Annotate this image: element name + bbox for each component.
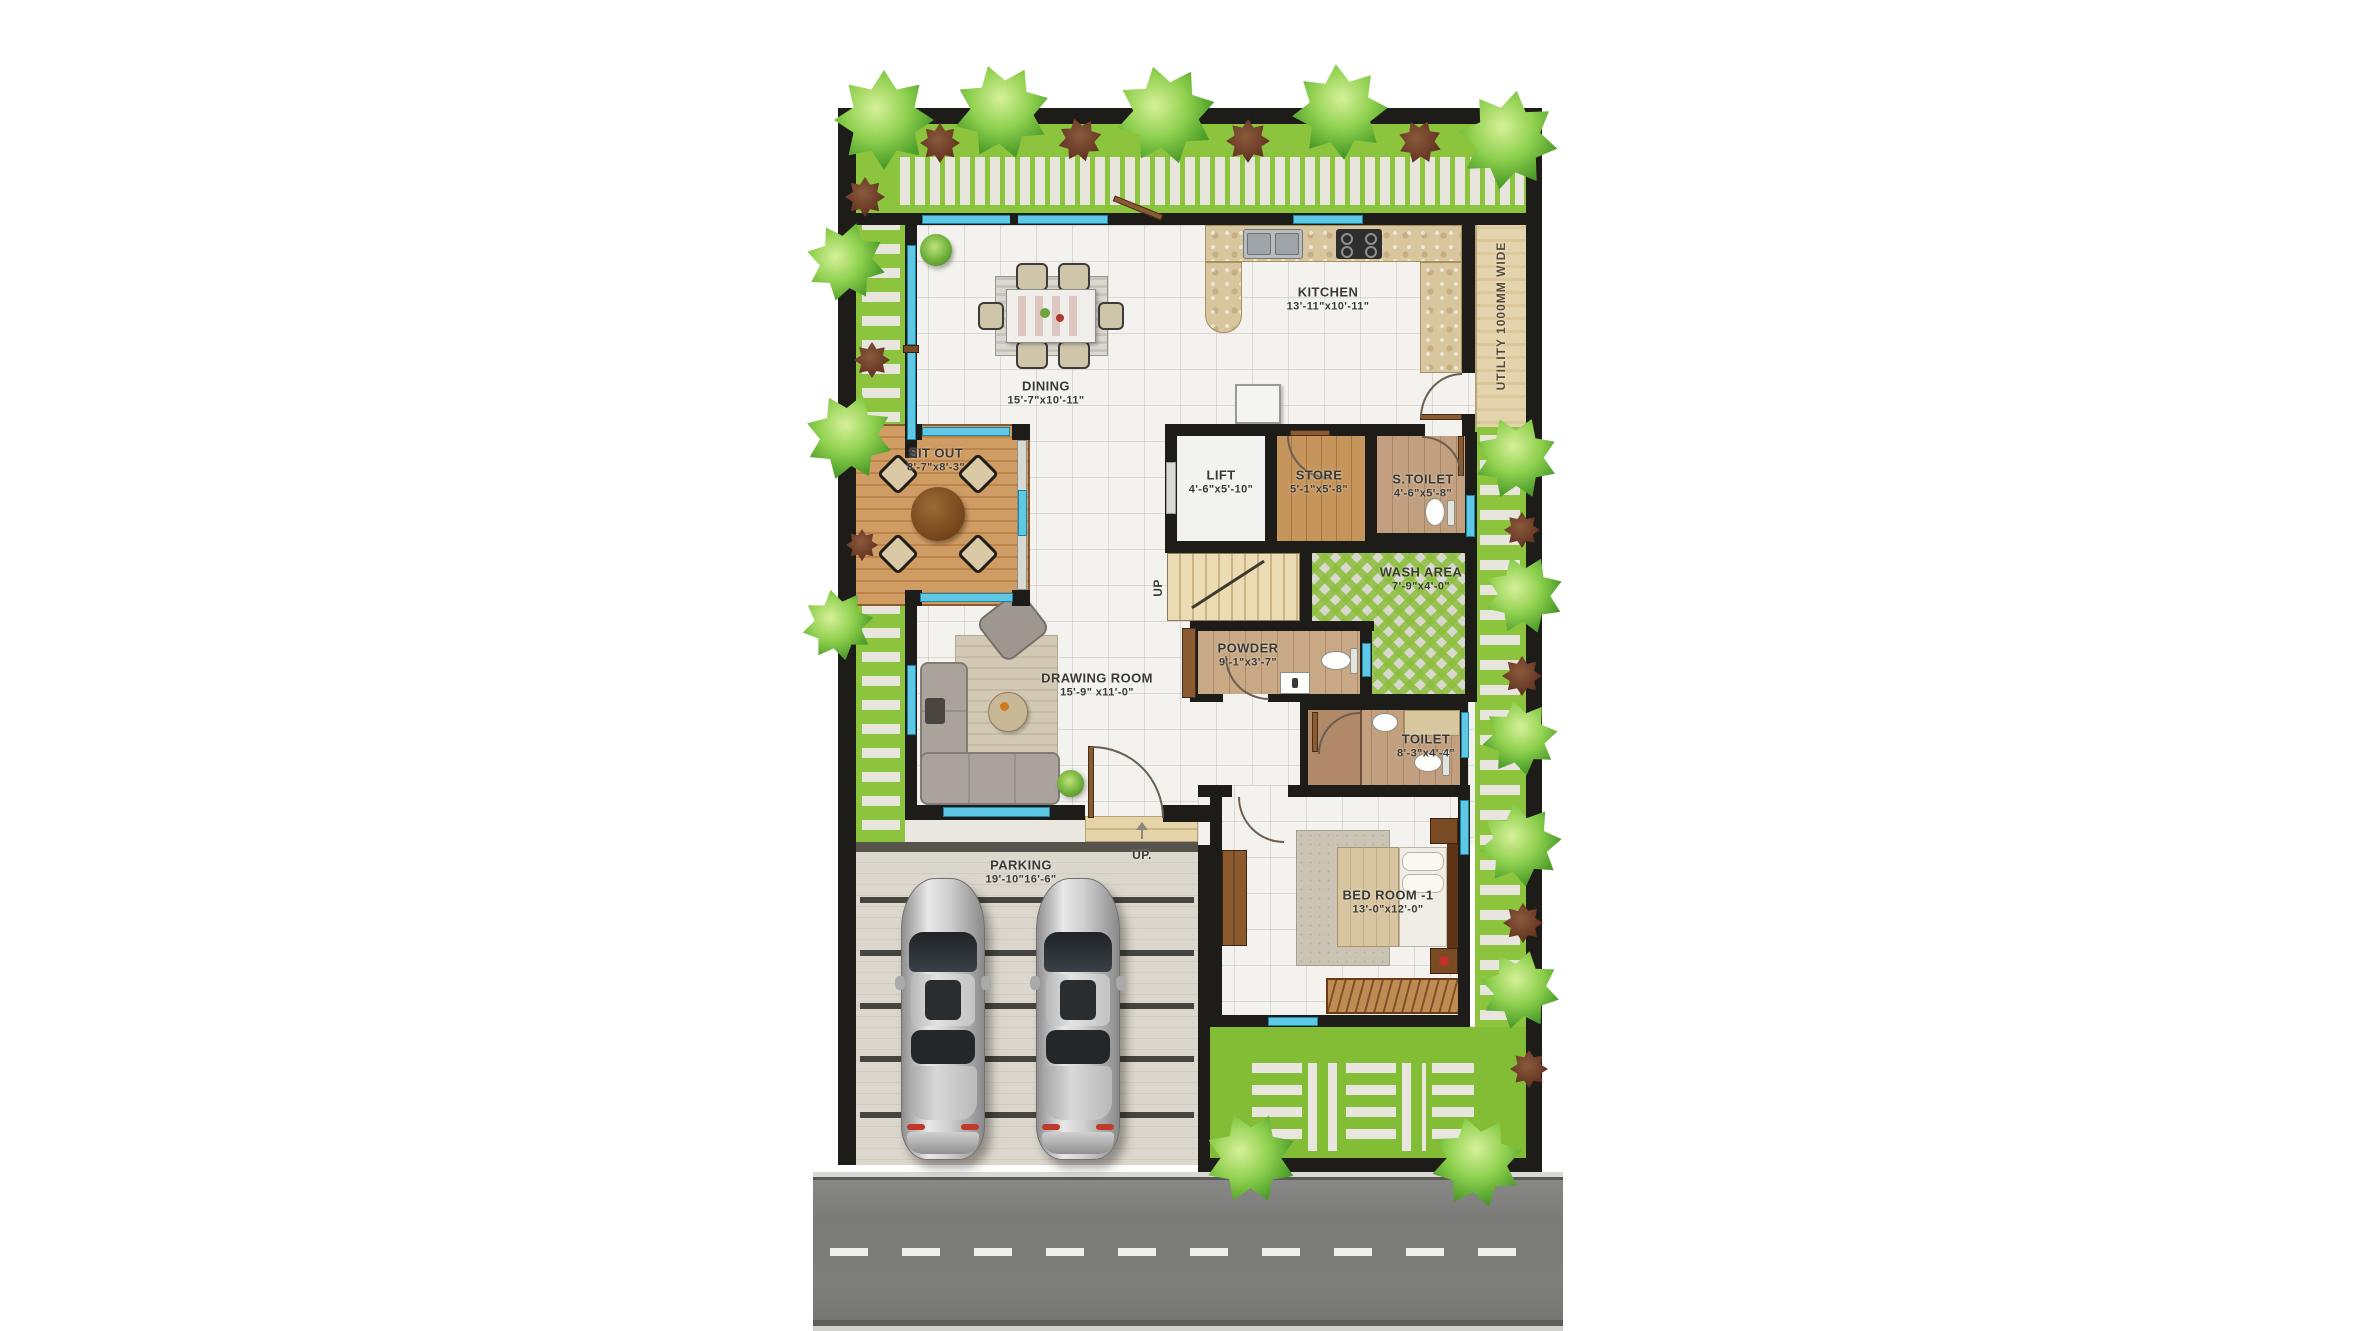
shrub-icon	[1502, 656, 1542, 696]
powder-wc-tank	[1350, 648, 1358, 674]
powder-wc	[1321, 651, 1351, 670]
car-sunroof	[1060, 980, 1096, 1020]
car-trunk	[1044, 1066, 1112, 1120]
shrub-icon	[1503, 903, 1543, 943]
car-bumper	[1042, 1132, 1114, 1154]
potted-plant	[1057, 770, 1084, 797]
window-mullion	[1010, 214, 1018, 225]
wall-bedroom-top	[1198, 785, 1232, 797]
window-kitchen-top	[1293, 215, 1363, 224]
wall-store	[1365, 424, 1377, 553]
hob-burner	[1341, 246, 1353, 258]
shrub-icon	[1504, 512, 1540, 548]
dining-chair	[1098, 302, 1124, 330]
window-bedroom-right	[1460, 800, 1469, 855]
wardrobe	[1326, 978, 1462, 1014]
window-sill	[903, 345, 919, 353]
car-taillight	[961, 1124, 979, 1130]
kitchen-sink-bowl	[1275, 233, 1299, 255]
wall-porch-back	[1163, 805, 1210, 822]
room-label-bedroom-1: BED ROOM -1	[1342, 889, 1433, 902]
car-rear-window	[911, 1030, 975, 1064]
room-label-toilet: TOILET	[1402, 733, 1450, 746]
wall-wash-right	[1465, 553, 1477, 702]
window-powder	[1362, 643, 1371, 677]
room-dims-lift: 4'-6"x5'-10"	[1189, 485, 1254, 496]
room-label-drawing-room: DRAWING ROOM	[1041, 672, 1153, 685]
car-sunroof	[925, 980, 961, 1020]
window-sit-out-top	[922, 427, 1010, 436]
car-windshield	[1044, 932, 1112, 972]
window-s-toilet	[1466, 495, 1475, 537]
dining-chair	[978, 302, 1004, 330]
room-label-parking: PARKING	[990, 859, 1052, 872]
car-windshield	[909, 932, 977, 972]
car	[1036, 878, 1120, 1160]
room-label-s-toilet: S.TOILET	[1392, 473, 1453, 486]
room-dims-bedroom-1: 13'-0"x12'-0"	[1352, 905, 1423, 916]
dining-centerpiece	[1040, 308, 1050, 318]
window-bedroom-bottom	[1268, 1017, 1318, 1026]
dining-chair	[1058, 263, 1090, 291]
lawn-pavers-3	[1346, 1063, 1396, 1151]
hob-burner	[1341, 233, 1353, 245]
toilet-washbasin	[1372, 713, 1398, 732]
room-label-sit-out: SIT OUT	[909, 447, 963, 460]
powder-basin-tap	[1292, 678, 1298, 688]
car-bumper	[907, 1132, 979, 1154]
car-taillight	[1096, 1124, 1114, 1130]
wall-s-toilet	[1377, 424, 1425, 436]
room-dims-sit-out: 8'-7"x8'-3"	[907, 463, 965, 474]
up-arrow-stem	[1141, 830, 1143, 839]
room-dims-powder: 9'-1"x3'-7"	[1219, 658, 1277, 669]
kitchen-peninsula	[1205, 262, 1242, 333]
bed-headboard	[1447, 843, 1458, 951]
room-label-dining: DINING	[1022, 380, 1070, 393]
hall-door-leaf	[1182, 628, 1196, 698]
wall-bedroom-left	[1210, 797, 1222, 1027]
window-drawing-bottom	[943, 807, 1050, 817]
room-dims-drawing-room: 15'-9" x11'-0"	[1060, 688, 1134, 699]
side-table	[925, 698, 945, 724]
dining-table-setting	[1018, 296, 1084, 336]
coffee-table	[988, 692, 1028, 732]
wall-parking-right	[1198, 845, 1210, 1165]
wall-lift	[1165, 424, 1277, 436]
sit-out-table	[911, 487, 965, 541]
window-dining-left	[907, 352, 916, 440]
room-label-wash-area: WASH AREA	[1380, 566, 1463, 579]
wall-kitchen-right	[1462, 225, 1475, 373]
room-dims-kitchen: 13'-11"x10'-11"	[1287, 302, 1370, 313]
shrub-icon	[1226, 119, 1270, 163]
dining-centerpiece-2	[1056, 314, 1064, 322]
room-dims-wash-area: 7'-9"x4'-0"	[1392, 582, 1450, 593]
room-label-powder: POWDER	[1218, 642, 1279, 655]
dining-chair	[1016, 263, 1048, 291]
kitchen-sink-bowl	[1247, 233, 1271, 255]
room-dims-toilet: 8'-3"x4'-4"	[1397, 749, 1455, 760]
window-sit-out-bottom	[920, 593, 1013, 602]
toilet-door-leaf	[1312, 712, 1318, 752]
entrance-up-label: UP.	[1132, 849, 1152, 861]
nightstand-decor	[1439, 956, 1449, 966]
dining-chair	[1058, 341, 1090, 369]
stairs-up-label: UP	[1152, 579, 1164, 596]
sit-out-post	[1012, 424, 1030, 440]
shrub-icon	[846, 529, 878, 561]
lift-door-slot	[1166, 462, 1176, 514]
wall-lift	[1265, 424, 1277, 553]
window-sit-out-right	[1018, 490, 1027, 536]
road-center-dashes	[830, 1248, 1548, 1256]
car-trunk	[909, 1066, 977, 1120]
room-dims-dining: 15'-7"x10'-11"	[1008, 396, 1085, 407]
porch-strip	[905, 820, 1085, 842]
wall-powder-top	[1190, 621, 1374, 631]
room-label-kitchen: KITCHEN	[1298, 286, 1359, 299]
hob-burner	[1365, 233, 1377, 245]
road-edge-bottom	[813, 1326, 1563, 1331]
shrub-icon	[920, 123, 960, 163]
car-mirror	[1030, 976, 1040, 990]
wall-stairs-right	[1300, 553, 1312, 631]
lawn-pavers-4	[1402, 1063, 1426, 1151]
car-taillight	[907, 1124, 925, 1130]
kitchen-counter-right	[1420, 262, 1462, 373]
refrigerator	[1235, 384, 1281, 424]
shrub-icon	[1510, 1050, 1548, 1088]
car-mirror	[895, 976, 905, 990]
wall-s-toilet	[1377, 533, 1477, 545]
window-dining-left	[907, 245, 916, 345]
wall-lift	[1165, 541, 1277, 553]
potted-plant	[920, 234, 952, 266]
nightstand	[1430, 818, 1458, 844]
wall-bedroom-bottom	[1210, 1015, 1470, 1027]
car-taillight	[1042, 1124, 1060, 1130]
wall-toilet-left	[1300, 702, 1308, 793]
room-label-store: STORE	[1296, 469, 1343, 482]
lawn-pavers-2	[1308, 1063, 1340, 1151]
car	[901, 878, 985, 1160]
sit-out-post	[1012, 590, 1030, 606]
hob-burner	[1365, 246, 1377, 258]
room-dims-parking: 19'-10"16'-6"	[985, 875, 1056, 886]
dining-chair	[1016, 341, 1048, 369]
car-mirror	[981, 976, 991, 990]
palm-tree-icon	[834, 70, 934, 170]
coffee-table-item	[1000, 702, 1009, 711]
room-label-lift: LIFT	[1206, 469, 1235, 482]
shrub-icon	[854, 342, 890, 378]
car-rear-window	[1046, 1030, 1110, 1064]
car-mirror	[1116, 976, 1126, 990]
shrub-icon	[845, 177, 885, 217]
s-toilet-wc	[1425, 498, 1445, 526]
floor-plan-canvas: DINING 15'-7"x10'-11" KITCHEN 13'-11"x10…	[0, 0, 2363, 1331]
room-dims-store: 5'-1"x5'-8"	[1290, 485, 1348, 496]
utility-strip-label: UTILITY 1000MM WIDE	[1495, 242, 1507, 391]
wall-wash-toilet-band	[1300, 694, 1468, 710]
s-toilet-wc-tank	[1447, 500, 1455, 526]
wall-bedroom-top	[1288, 785, 1470, 797]
window-toilet	[1461, 712, 1469, 758]
bed-pillow	[1402, 852, 1444, 871]
room-dims-s-toilet: 4'-6"x5'-8"	[1394, 489, 1452, 500]
sofa-section-horizontal	[920, 752, 1060, 805]
staircase	[1167, 553, 1300, 621]
top-garden-pavers	[900, 157, 1524, 205]
window-drawing-left	[907, 665, 916, 735]
up-arrow-icon	[1136, 822, 1148, 830]
dresser	[1222, 850, 1247, 946]
